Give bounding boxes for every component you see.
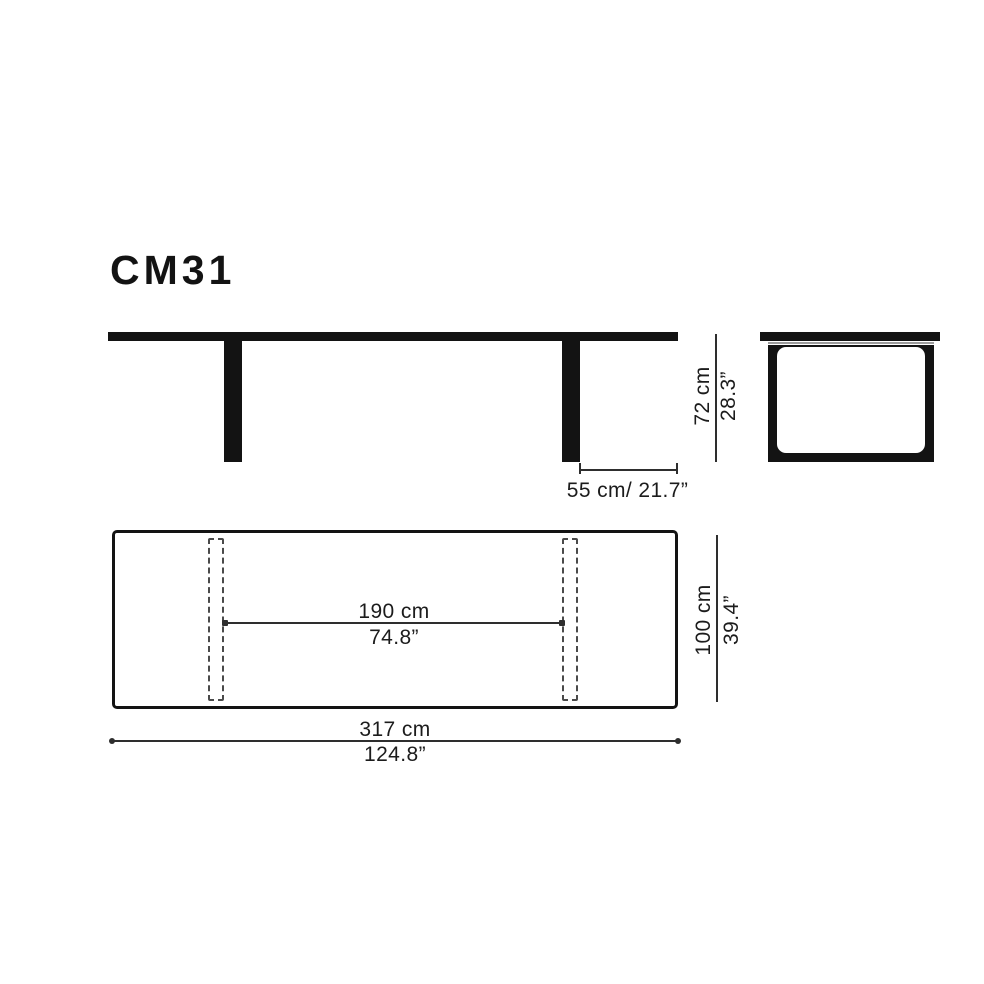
dim-dot-length-right [675,738,681,744]
product-title: CM31 [110,250,235,291]
spec-sheet: CM31 55 cm/ 21.7” 72 cm 28.3” 190 cm 74.… [0,0,984,984]
side-view-left-leg [224,341,242,462]
dim-label-length-cm: 317 cm [320,718,470,741]
dim-line-width [716,535,718,702]
end-view-leg-frame [768,345,934,462]
dim-label-leg-span-in: 74.8” [319,626,469,649]
dim-tick-overhang-left [579,463,581,474]
end-view-leg-frame-opening [777,347,925,453]
dim-label-height-in: 28.3” [717,355,739,437]
dim-line-overhang [580,469,677,471]
side-view-right-leg [562,341,580,462]
dim-dot-length-left [109,738,115,744]
dim-tick-overhang-right [676,463,678,474]
dim-dot-leg-span-left [222,620,228,626]
dim-label-width-cm: 100 cm [692,574,714,666]
dim-label-height-cm: 72 cm [691,355,713,437]
end-view-shadow-line [768,342,934,344]
dim-label-width-in: 39.4” [720,574,742,666]
dim-label-length-in: 124.8” [320,743,470,766]
dim-label-leg-span-cm: 190 cm [319,600,469,623]
end-view-tabletop [760,332,940,341]
side-view-tabletop [108,332,678,341]
dim-label-overhang: 55 cm/ 21.7” [545,479,710,502]
dim-dot-leg-span-right [559,620,565,626]
